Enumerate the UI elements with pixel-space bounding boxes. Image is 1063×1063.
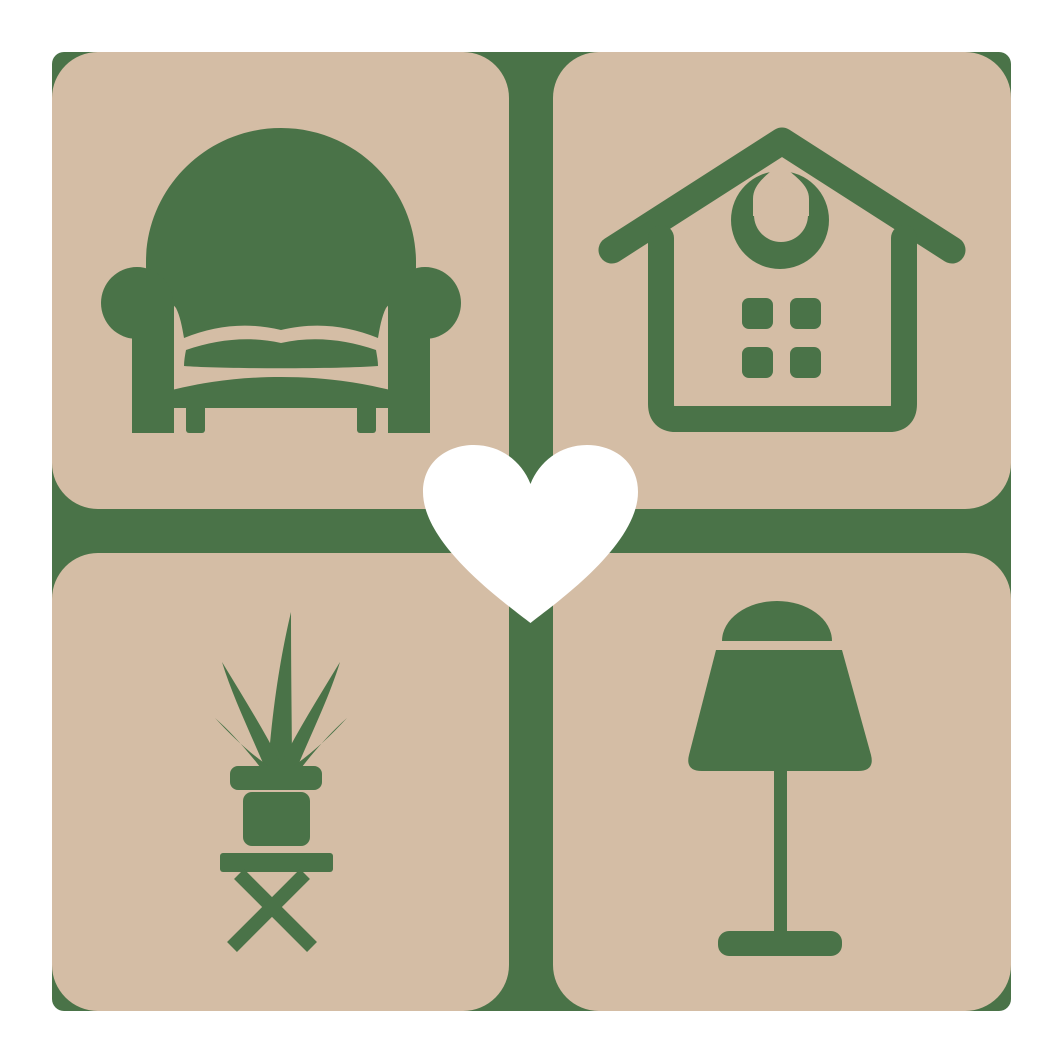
armchair-seat-cushion	[184, 339, 378, 368]
house-ornament-droplet-bowl	[754, 188, 808, 242]
lamp-shade	[688, 650, 872, 771]
house-window-pane-top-left	[742, 298, 773, 329]
home-furniture-logo	[0, 0, 1063, 1063]
armchair-right-armrest	[388, 303, 430, 433]
stool-seat	[220, 853, 333, 872]
lamp-base	[718, 931, 842, 956]
tile-house	[553, 52, 1011, 509]
armchair-left-armrest	[132, 303, 174, 433]
house-window-pane-bottom-right	[790, 347, 821, 378]
logo-canvas	[0, 0, 1063, 1063]
plant-pot-body	[243, 792, 310, 846]
armchair-right-leg	[357, 404, 376, 433]
plant-pot-rim	[230, 766, 322, 790]
armchair-left-leg	[186, 404, 205, 433]
house-window-pane-top-right	[790, 298, 821, 329]
lamp-stem	[774, 771, 787, 936]
house-window-pane-bottom-left	[742, 347, 773, 378]
